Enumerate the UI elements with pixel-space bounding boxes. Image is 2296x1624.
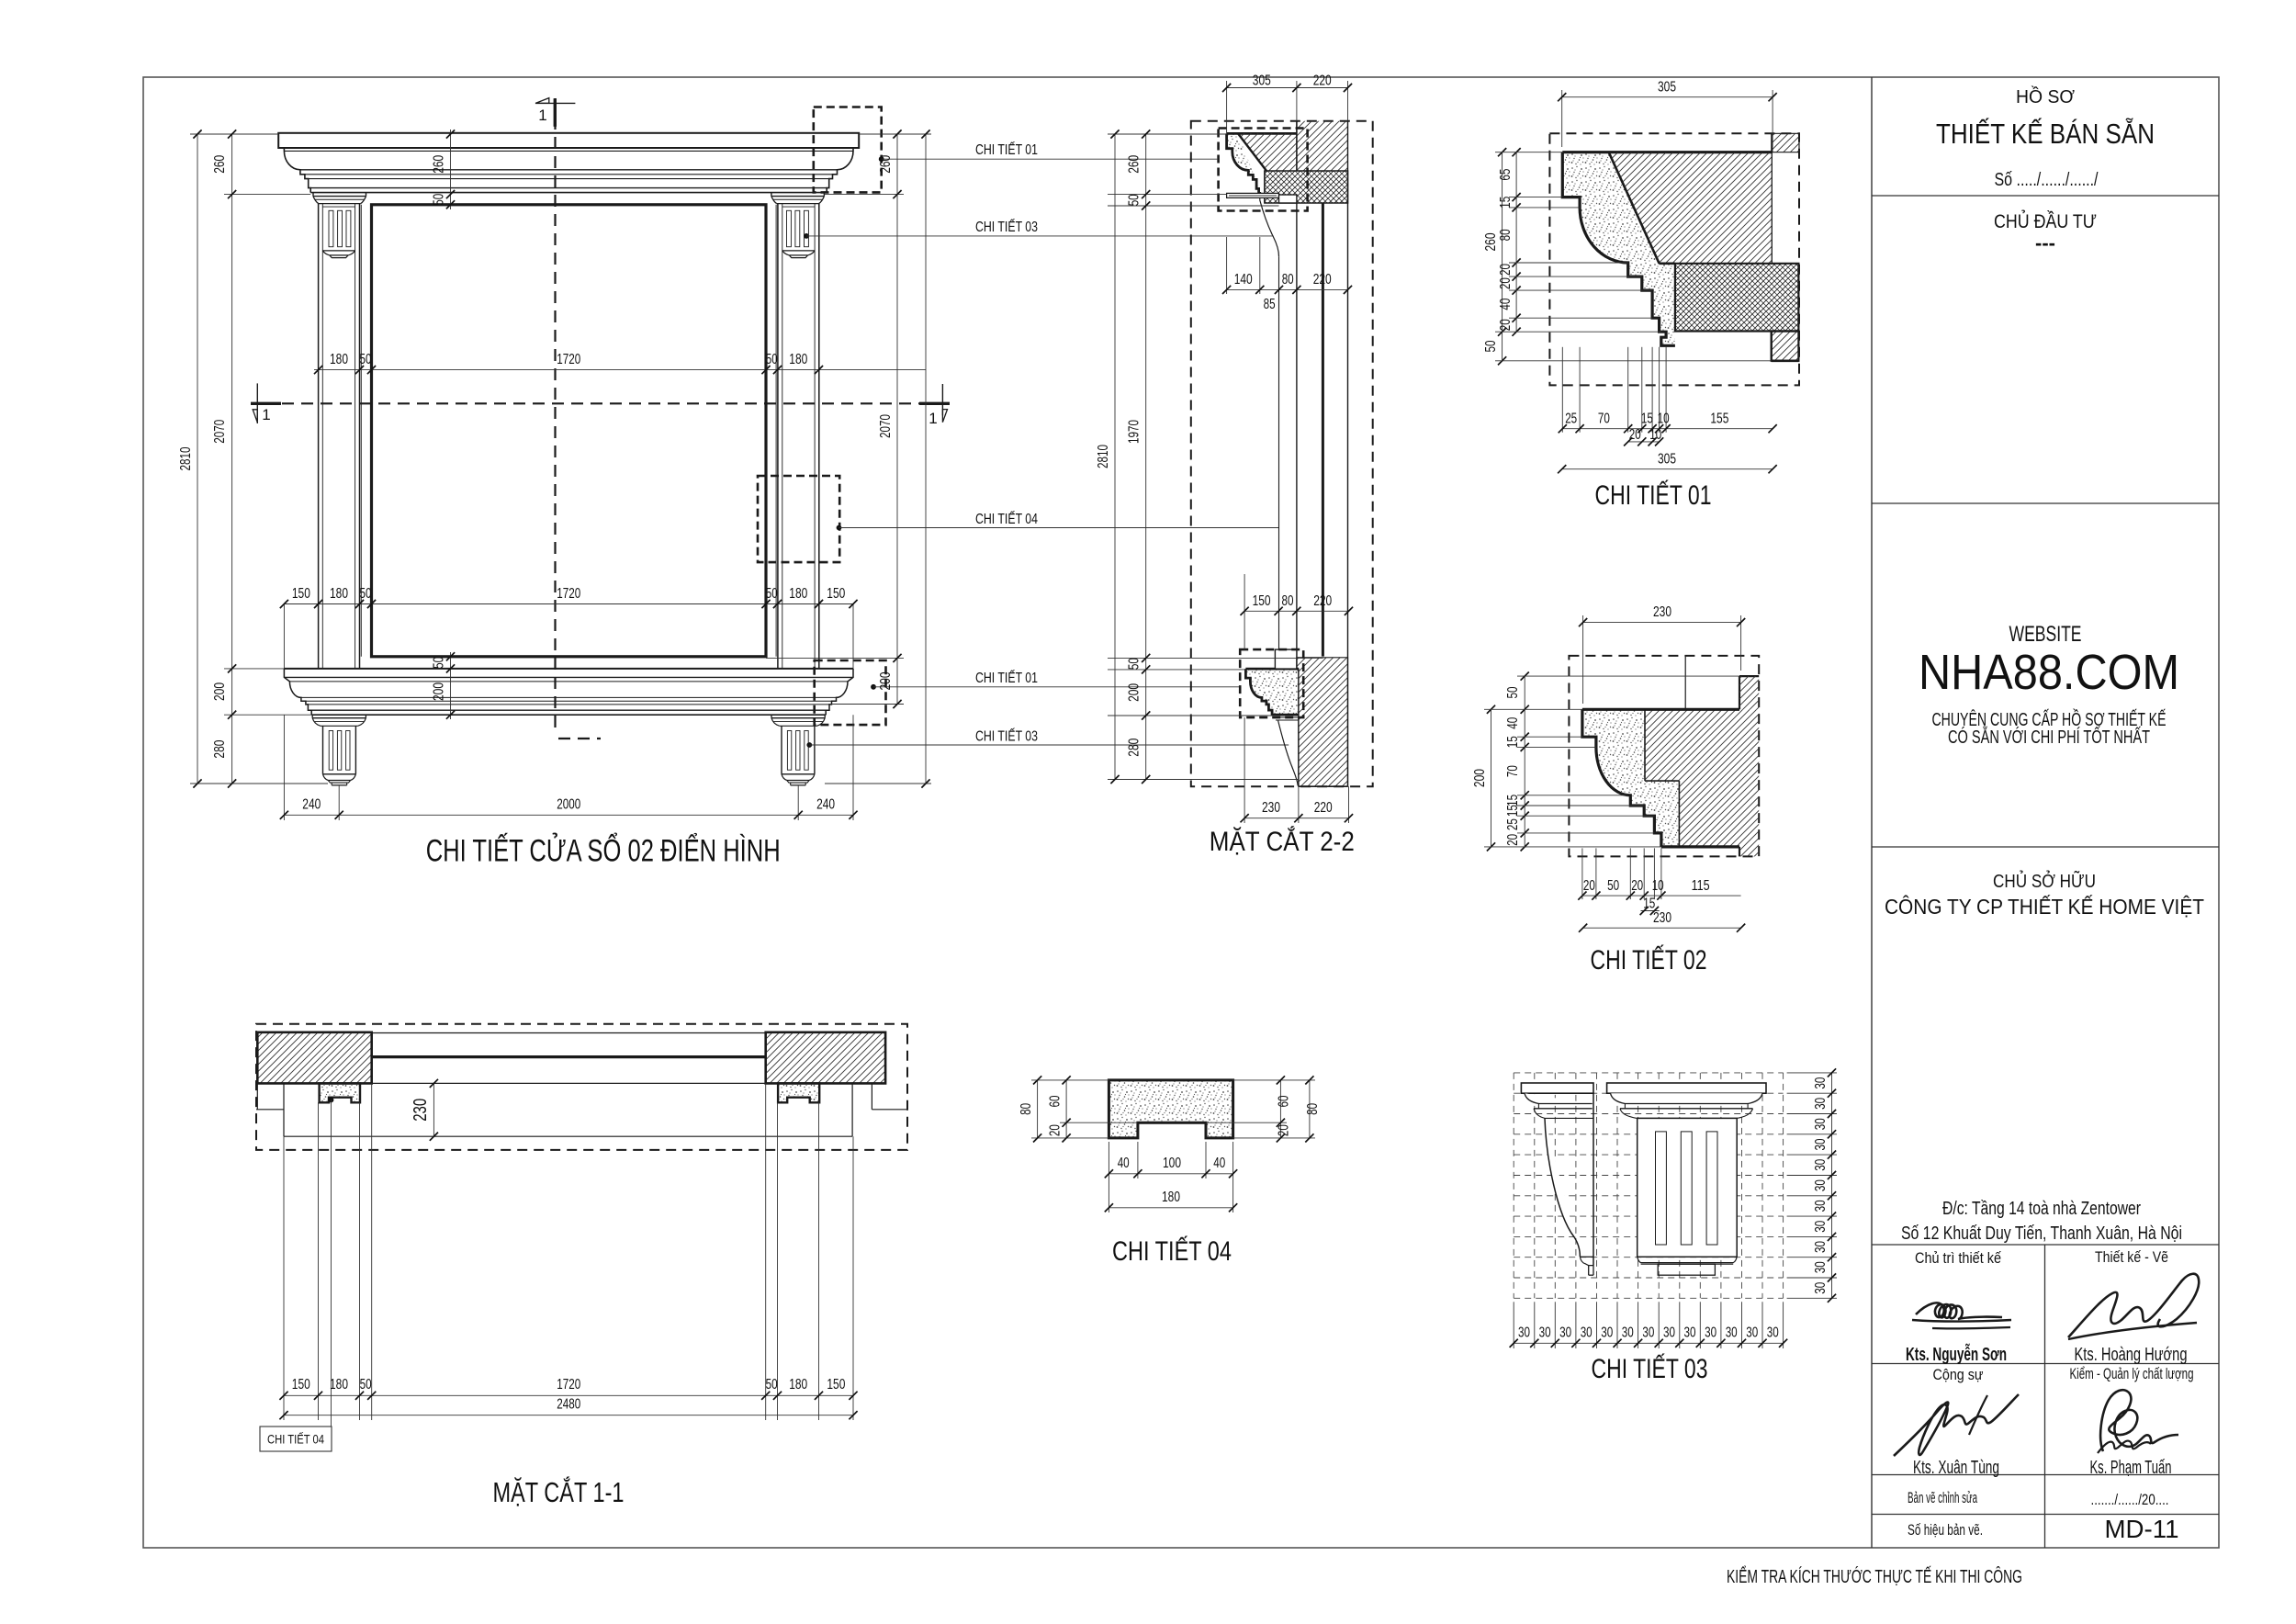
svg-text:180: 180 bbox=[789, 352, 807, 367]
svg-text:CHI TIẾT 04: CHI TIẾT 04 bbox=[975, 512, 1038, 527]
svg-text:NHA88.COM: NHA88.COM bbox=[1919, 645, 2179, 700]
svg-text:40: 40 bbox=[1213, 1156, 1225, 1171]
svg-text:30: 30 bbox=[1539, 1325, 1551, 1341]
svg-text:200: 200 bbox=[432, 682, 447, 701]
svg-text:50: 50 bbox=[766, 1377, 778, 1393]
svg-text:Thiết kế - Vẽ: Thiết kế - Vẽ bbox=[2095, 1248, 2168, 1266]
svg-text:70: 70 bbox=[1598, 412, 1610, 427]
svg-text:50: 50 bbox=[360, 352, 372, 367]
svg-text:50: 50 bbox=[766, 586, 778, 602]
svg-text:70: 70 bbox=[1505, 765, 1521, 777]
svg-text:Số hiệu bản vẽ.: Số hiệu bản vẽ. bbox=[1908, 1521, 1983, 1539]
svg-text:100: 100 bbox=[1163, 1156, 1181, 1171]
svg-text:30: 30 bbox=[1518, 1325, 1530, 1341]
svg-text:200: 200 bbox=[878, 671, 894, 690]
svg-text:50: 50 bbox=[1127, 658, 1142, 670]
svg-text:CÓ SẴN VỚI CHI PHÍ TỐT NHẤT: CÓ SẴN VỚI CHI PHÍ TỐT NHẤT bbox=[1948, 726, 2150, 748]
svg-text:Kts. Nguyễn Sơn: Kts. Nguyễn Sơn bbox=[1906, 1343, 2007, 1365]
svg-text:CHI TIẾT 01: CHI TIẾT 01 bbox=[1595, 479, 1712, 511]
svg-text:150: 150 bbox=[292, 1377, 310, 1393]
svg-text:Kiểm - Quản lý chất lượng: Kiểm - Quản lý chất lượng bbox=[2070, 1365, 2194, 1382]
svg-text:30: 30 bbox=[1705, 1325, 1716, 1341]
svg-text:1: 1 bbox=[262, 406, 270, 423]
svg-text:40: 40 bbox=[1505, 717, 1521, 729]
svg-text:Đ/c: Tầng 14 toà nhà Zentower: Đ/c: Tầng 14 toà nhà Zentower bbox=[1942, 1199, 2141, 1219]
svg-text:30: 30 bbox=[1813, 1241, 1829, 1253]
svg-text:2070: 2070 bbox=[212, 420, 228, 444]
svg-text:MD-11: MD-11 bbox=[2105, 1515, 2179, 1543]
svg-text:Kts. Hoàng Hướng: Kts. Hoàng Hướng bbox=[2075, 1345, 2188, 1365]
svg-text:85: 85 bbox=[1264, 297, 1276, 312]
svg-text:180: 180 bbox=[789, 1377, 807, 1393]
svg-text:30: 30 bbox=[1813, 1261, 1829, 1273]
svg-text:2000: 2000 bbox=[557, 797, 580, 813]
svg-text:50: 50 bbox=[766, 352, 778, 367]
svg-text:HỒ SƠ: HỒ SƠ bbox=[2016, 85, 2075, 107]
svg-text:80: 80 bbox=[1282, 593, 1294, 609]
svg-text:280: 280 bbox=[212, 739, 228, 758]
svg-text:220: 220 bbox=[1313, 73, 1332, 89]
svg-text:180: 180 bbox=[330, 352, 348, 367]
svg-text:65: 65 bbox=[1498, 169, 1514, 181]
svg-text:240: 240 bbox=[816, 797, 835, 813]
svg-text:180: 180 bbox=[789, 586, 807, 602]
svg-text:1: 1 bbox=[538, 107, 546, 124]
svg-text:20: 20 bbox=[1631, 878, 1643, 894]
svg-text:20: 20 bbox=[1277, 1124, 1292, 1136]
svg-text:150: 150 bbox=[292, 586, 310, 602]
svg-text:CHI TIẾT 03: CHI TIẾT 03 bbox=[975, 220, 1038, 235]
svg-text:50: 50 bbox=[360, 1377, 372, 1393]
svg-text:50: 50 bbox=[360, 586, 372, 602]
svg-text:10: 10 bbox=[1649, 427, 1661, 443]
svg-text:2070: 2070 bbox=[878, 414, 894, 438]
svg-text:THIẾT KẾ BÁN SẴN: THIẾT KẾ BÁN SẴN bbox=[1936, 117, 2155, 150]
svg-text:180: 180 bbox=[330, 1377, 348, 1393]
svg-text:20: 20 bbox=[1498, 277, 1514, 289]
svg-text:CHI TIẾT 04: CHI TIẾT 04 bbox=[267, 1432, 324, 1447]
svg-text:50: 50 bbox=[1505, 686, 1521, 698]
svg-text:CHI TIẾT 03: CHI TIẾT 03 bbox=[975, 729, 1038, 745]
svg-text:20: 20 bbox=[1498, 264, 1514, 276]
svg-text:MẶT CẮT 2-2: MẶT CẮT 2-2 bbox=[1210, 826, 1355, 857]
svg-text:30: 30 bbox=[1726, 1325, 1738, 1341]
svg-text:Số 12 Khuất Duy Tiến, Thanh Xu: Số 12 Khuất Duy Tiến, Thanh Xuân, Hà Nội bbox=[1901, 1224, 2182, 1244]
svg-text:15: 15 bbox=[1505, 805, 1521, 817]
svg-text:280: 280 bbox=[1127, 738, 1142, 756]
svg-text:CHI TIẾT 04: CHI TIẾT 04 bbox=[1112, 1235, 1232, 1267]
svg-text:CÔNG TY CP THIẾT KẾ HOME VIỆT: CÔNG TY CP THIẾT KẾ HOME VIỆT bbox=[1885, 894, 2204, 919]
svg-text:140: 140 bbox=[1234, 272, 1253, 288]
svg-text:10: 10 bbox=[1652, 878, 1664, 894]
svg-text:230: 230 bbox=[411, 1099, 431, 1122]
svg-text:60: 60 bbox=[1048, 1095, 1064, 1107]
svg-text:220: 220 bbox=[1313, 272, 1332, 288]
svg-text:10: 10 bbox=[1658, 412, 1670, 427]
svg-text:80: 80 bbox=[1305, 1103, 1321, 1115]
svg-text:1: 1 bbox=[929, 410, 937, 427]
svg-text:230: 230 bbox=[1262, 800, 1280, 816]
svg-text:CHỦ SỞ HỮU: CHỦ SỞ HỮU bbox=[1993, 870, 2096, 892]
svg-text:260: 260 bbox=[432, 155, 447, 174]
svg-text:30: 30 bbox=[1663, 1325, 1675, 1341]
svg-text:30: 30 bbox=[1813, 1200, 1829, 1212]
svg-text:150: 150 bbox=[827, 586, 845, 602]
svg-text:1970: 1970 bbox=[1127, 420, 1142, 444]
svg-text:CHI TIẾT 03: CHI TIẾT 03 bbox=[1592, 1353, 1708, 1384]
svg-text:20: 20 bbox=[1583, 878, 1595, 894]
svg-text:50: 50 bbox=[1607, 878, 1619, 894]
svg-text:30: 30 bbox=[1813, 1179, 1829, 1191]
svg-text:50: 50 bbox=[432, 657, 447, 669]
svg-text:15: 15 bbox=[1505, 795, 1521, 806]
svg-text:30: 30 bbox=[1813, 1077, 1829, 1088]
svg-text:......./....../20....: ......./....../20.... bbox=[2091, 1491, 2169, 1508]
svg-text:30: 30 bbox=[1746, 1325, 1758, 1341]
svg-text:20: 20 bbox=[1498, 319, 1514, 331]
svg-text:1720: 1720 bbox=[557, 352, 580, 367]
svg-text:30: 30 bbox=[1813, 1098, 1829, 1110]
svg-text:15: 15 bbox=[1643, 897, 1655, 912]
svg-text:80: 80 bbox=[1019, 1103, 1034, 1115]
svg-text:150: 150 bbox=[827, 1377, 845, 1393]
svg-text:30: 30 bbox=[1622, 1325, 1634, 1341]
svg-text:2810: 2810 bbox=[1096, 445, 1111, 468]
svg-text:20: 20 bbox=[1629, 427, 1641, 443]
svg-text:180: 180 bbox=[330, 586, 348, 602]
svg-text:260: 260 bbox=[878, 155, 894, 174]
svg-text:40: 40 bbox=[1498, 298, 1514, 310]
svg-text:260: 260 bbox=[212, 155, 228, 174]
svg-text:305: 305 bbox=[1658, 452, 1676, 468]
svg-text:Ks. Phạm Tuấn: Ks. Phạm Tuấn bbox=[2090, 1458, 2172, 1478]
svg-text:200: 200 bbox=[1127, 683, 1142, 702]
svg-text:2480: 2480 bbox=[557, 1397, 580, 1413]
svg-text:Bản vẽ chỉnh sửa: Bản vẽ chỉnh sửa bbox=[1908, 1489, 1977, 1506]
svg-text:200: 200 bbox=[1472, 769, 1488, 787]
svg-text:Chủ trì thiết kế: Chủ trì thiết kế bbox=[1915, 1249, 2001, 1267]
svg-text:1720: 1720 bbox=[557, 586, 580, 602]
svg-text:CHI TIẾT CỬA SỔ 02 ĐIỂN HÌNH: CHI TIẾT CỬA SỔ 02 ĐIỂN HÌNH bbox=[426, 834, 781, 869]
svg-text:CHI TIẾT 01: CHI TIẾT 01 bbox=[975, 142, 1038, 158]
svg-text:155: 155 bbox=[1710, 412, 1728, 427]
svg-text:2810: 2810 bbox=[178, 446, 194, 470]
svg-text:30: 30 bbox=[1813, 1159, 1829, 1171]
svg-text:CHỦ ĐẦU TƯ: CHỦ ĐẦU TƯ bbox=[1994, 210, 2097, 232]
svg-text:1720: 1720 bbox=[557, 1377, 580, 1393]
svg-text:115: 115 bbox=[1692, 878, 1710, 894]
svg-text:230: 230 bbox=[1653, 604, 1671, 620]
svg-text:260: 260 bbox=[1483, 232, 1499, 251]
svg-text:25: 25 bbox=[1505, 818, 1521, 830]
svg-text:15: 15 bbox=[1641, 412, 1653, 427]
svg-text:30: 30 bbox=[1813, 1220, 1829, 1232]
svg-text:50: 50 bbox=[432, 193, 447, 205]
svg-text:230: 230 bbox=[1653, 910, 1671, 926]
svg-text:WEBSITE: WEBSITE bbox=[2009, 622, 2082, 647]
svg-text:305: 305 bbox=[1658, 80, 1676, 96]
svg-text:15: 15 bbox=[1505, 736, 1521, 748]
svg-text:20: 20 bbox=[1048, 1124, 1064, 1136]
svg-text:MẶT CẮT 1-1: MẶT CẮT 1-1 bbox=[493, 1475, 625, 1508]
svg-text:CHI TIẾT 02: CHI TIẾT 02 bbox=[1591, 944, 1707, 976]
svg-text:305: 305 bbox=[1253, 73, 1271, 89]
svg-text:60: 60 bbox=[1277, 1095, 1292, 1107]
svg-text:Kts. Xuân Tùng: Kts. Xuân Tùng bbox=[1913, 1458, 1999, 1478]
svg-text:KIỂM TRA KÍCH THƯỚC THỰC TẾ KH: KIỂM TRA KÍCH THƯỚC THỰC TẾ KHI THI CÔNG bbox=[1727, 1566, 2022, 1587]
svg-text:25: 25 bbox=[1565, 412, 1577, 427]
svg-text:50: 50 bbox=[1127, 194, 1142, 206]
svg-text:150: 150 bbox=[1253, 593, 1271, 609]
svg-text:220: 220 bbox=[1313, 593, 1332, 609]
svg-text:30: 30 bbox=[1601, 1325, 1613, 1341]
svg-text:30: 30 bbox=[1813, 1138, 1829, 1150]
svg-text:260: 260 bbox=[1127, 155, 1142, 174]
svg-text:30: 30 bbox=[1559, 1325, 1571, 1341]
svg-text:50: 50 bbox=[1483, 340, 1499, 352]
svg-text:Cộng sự: Cộng sự bbox=[1933, 1366, 1984, 1383]
svg-text:220: 220 bbox=[1314, 800, 1333, 816]
svg-text:180: 180 bbox=[1162, 1190, 1180, 1205]
svg-text:40: 40 bbox=[1118, 1156, 1130, 1171]
svg-text:---: --- bbox=[2035, 231, 2055, 254]
svg-text:30: 30 bbox=[1684, 1325, 1696, 1341]
svg-text:80: 80 bbox=[1498, 229, 1514, 241]
svg-text:15: 15 bbox=[1498, 197, 1514, 209]
svg-text:200: 200 bbox=[212, 682, 228, 701]
svg-text:30: 30 bbox=[1767, 1325, 1779, 1341]
svg-text:30: 30 bbox=[1813, 1118, 1829, 1130]
svg-text:CHI TIẾT 01: CHI TIẾT 01 bbox=[975, 671, 1038, 686]
svg-text:30: 30 bbox=[1813, 1281, 1829, 1293]
svg-text:80: 80 bbox=[1282, 272, 1294, 288]
svg-text:Số ...../....../....../: Số ...../....../....../ bbox=[1995, 170, 2099, 190]
svg-text:20: 20 bbox=[1505, 834, 1521, 846]
svg-text:240: 240 bbox=[302, 797, 321, 813]
svg-text:30: 30 bbox=[1581, 1325, 1593, 1341]
svg-text:30: 30 bbox=[1642, 1325, 1654, 1341]
